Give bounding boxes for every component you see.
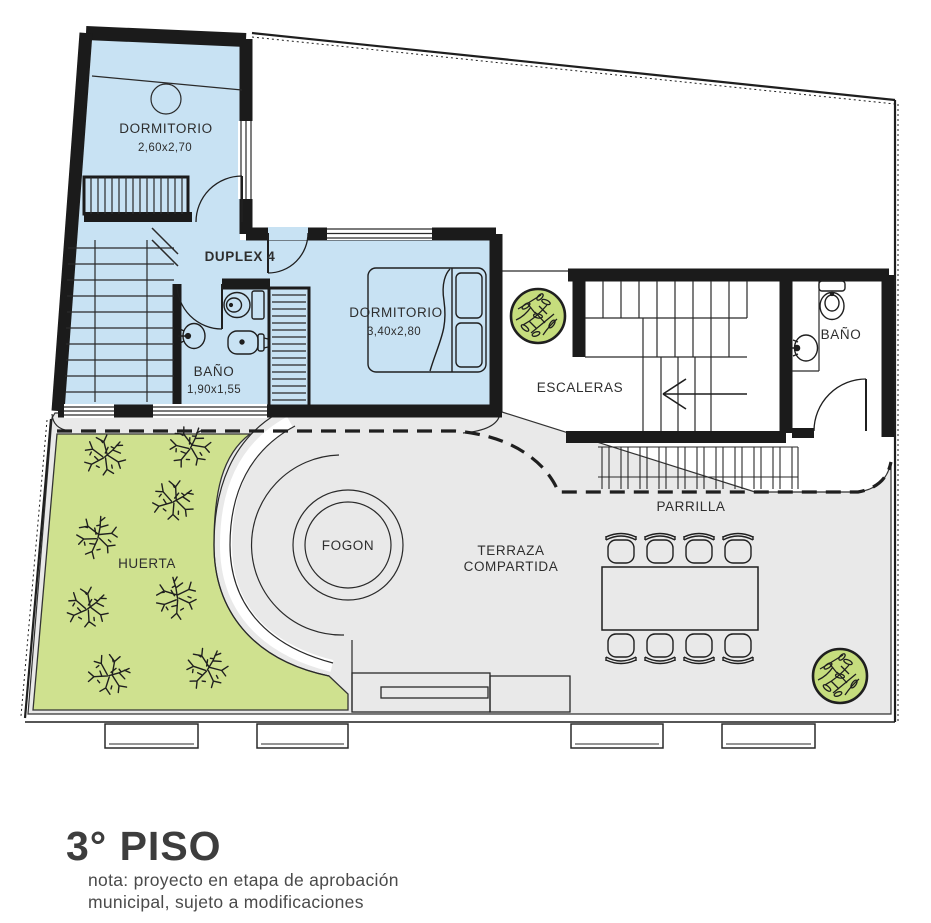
window-dorm1-right [238, 121, 253, 199]
bush-icon [813, 649, 867, 703]
note-line-1: nota: proyecto en etapa de aprobación [88, 870, 399, 890]
balcony-tab [257, 724, 348, 748]
direction-arrow [663, 379, 747, 409]
balcony-tab [722, 724, 815, 748]
bano-duplex-dims: 1,90x1,55 [187, 384, 241, 396]
boundary-top-hatch [252, 37, 895, 104]
boundary-top-line [252, 33, 895, 100]
parrilla-label: PARRILLA [656, 499, 725, 514]
floor-title: 3° PISO [66, 823, 222, 869]
sink-icon [792, 335, 818, 361]
duplex-label: DUPLEX 4 [205, 249, 276, 264]
balcony-tab [105, 724, 198, 748]
bush-icon [511, 289, 565, 343]
balcony-tab [571, 724, 663, 748]
terraza-label-line2: COMPARTIDA [464, 559, 559, 574]
huerta-label: HUERTA [118, 556, 176, 571]
note-line-2: municipal, sujeto a modificaciones [88, 892, 364, 912]
balcony-tabs [105, 724, 815, 748]
dormitorio2-label: DORMITORIO [349, 305, 443, 320]
window-bottom-1 [64, 404, 114, 418]
dormitorio2-dims: 3,40x2,80 [367, 326, 421, 338]
duplex-unit: DORMITORIO 2,60x2,70 DUPLEX 4 [58, 33, 502, 418]
dormitorio1-dims: 2,60x2,70 [138, 142, 192, 154]
dormitorio1-label: DORMITORIO [119, 121, 213, 136]
title-block: 3° PISO nota: proyecto en etapa de aprob… [66, 823, 399, 912]
escaleras-label: ESCALERAS [537, 380, 623, 395]
toilet-icon [819, 281, 845, 320]
stair-treads [585, 281, 747, 431]
terraza-label-line1: TERRAZA [477, 543, 544, 558]
floor-plan: HUERTA FOGON PARRILLA [0, 0, 931, 923]
window-dorm2-top [327, 226, 432, 240]
bano-shared-area: BAÑO [792, 281, 866, 431]
window-bottom-2 [153, 404, 267, 418]
door-swing-arc [814, 379, 866, 431]
bano-shared-label: BAÑO [821, 327, 862, 342]
bano-duplex-label: BAÑO [194, 364, 235, 379]
vanity-partition [792, 281, 819, 371]
fogon-label: FOGON [322, 538, 375, 553]
